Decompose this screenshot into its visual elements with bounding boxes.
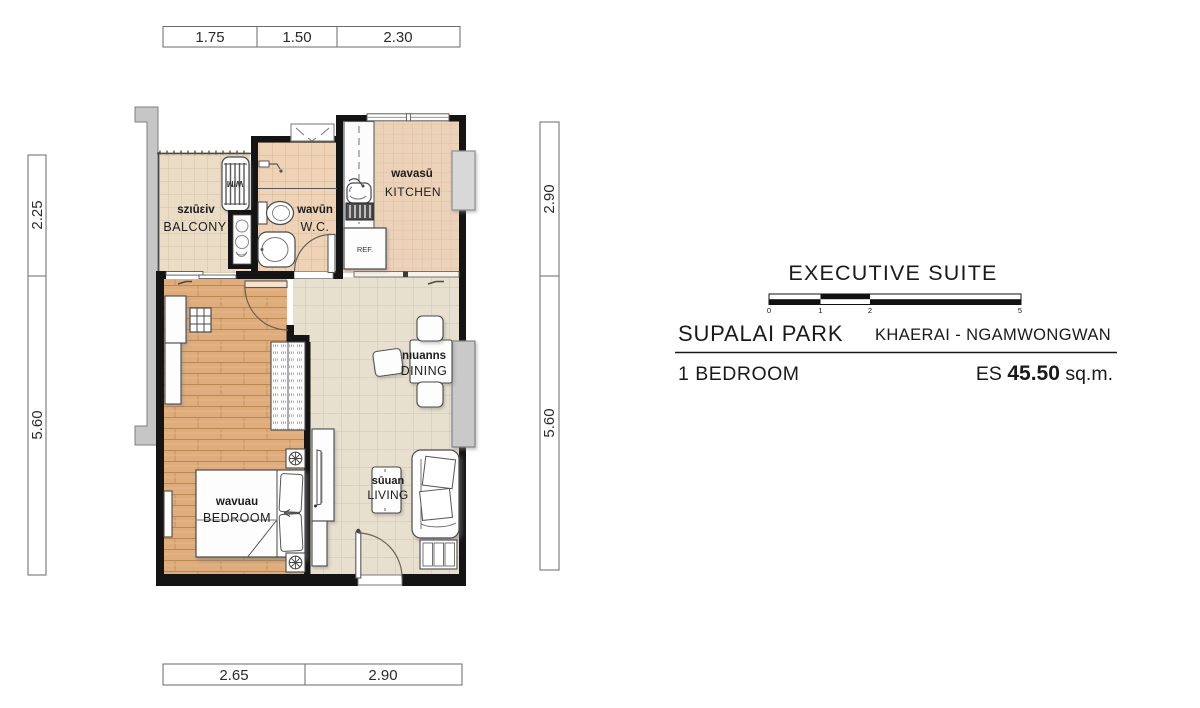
svg-text:SUPALAI PARK: SUPALAI PARK [678, 321, 843, 346]
svg-text:0: 0 [767, 306, 771, 315]
svg-text:5.60: 5.60 [541, 408, 558, 437]
svg-text:2.65: 2.65 [219, 667, 248, 684]
svg-text:wavasū: wavasū [390, 168, 433, 180]
svg-text:1 BEDROOM: 1 BEDROOM [678, 363, 800, 385]
svg-text:W.C.: W.C. [300, 220, 329, 234]
svg-text:wavūn: wavūn [296, 204, 333, 216]
svg-text:1.75: 1.75 [195, 29, 224, 46]
svg-text:1.50: 1.50 [282, 29, 311, 46]
svg-text:wavuаu: wavuаu [215, 496, 258, 508]
svg-text:2.30: 2.30 [383, 29, 412, 46]
svg-text:BEDROOM: BEDROOM [203, 511, 271, 525]
svg-text:nıuanns: nıuanns [402, 350, 446, 362]
svg-text:KHAERAI - NGAMWONGWAN: KHAERAI - NGAMWONGWAN [875, 326, 1111, 344]
svg-text:2.25: 2.25 [29, 200, 46, 229]
svg-text:DINING: DINING [401, 364, 448, 378]
svg-text:2.90: 2.90 [541, 184, 558, 213]
svg-text:REF.: REF. [357, 245, 373, 254]
svg-text:szιūεiv: szιūεiv [177, 204, 215, 216]
svg-text:LIVING: LIVING [367, 488, 408, 502]
svg-text:EXECUTIVE SUITE: EXECUTIVE SUITE [788, 261, 997, 285]
svg-text:sūuan: sūuan [372, 475, 405, 487]
svg-text:KITCHEN: KITCHEN [385, 185, 441, 199]
svg-text:5: 5 [1018, 306, 1022, 315]
svg-text:2.90: 2.90 [368, 667, 397, 684]
svg-text:ES 45.50 sq.m.: ES 45.50 sq.m. [976, 362, 1113, 385]
svg-text:1: 1 [818, 306, 822, 315]
svg-text:BALCONY: BALCONY [163, 220, 226, 234]
svg-text:W/M: W/M [226, 179, 243, 188]
svg-text:2: 2 [868, 306, 872, 315]
svg-text:5.60: 5.60 [29, 410, 46, 439]
